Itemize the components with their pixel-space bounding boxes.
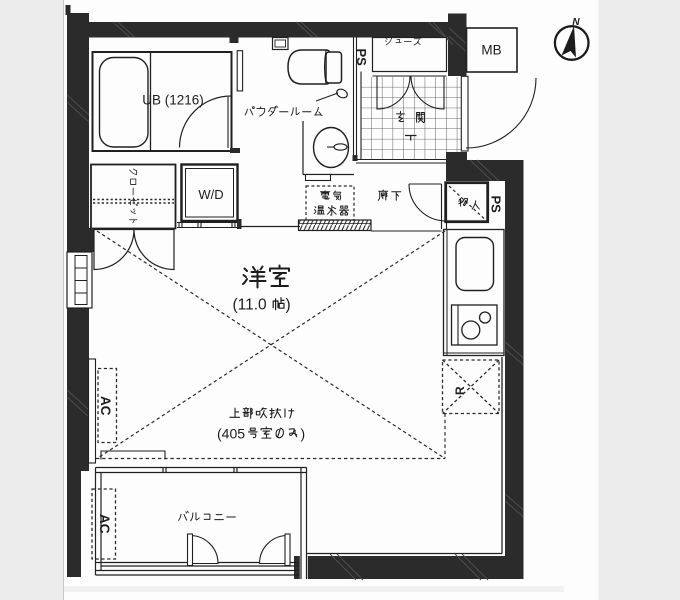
svg-text:AC: AC: [98, 396, 113, 416]
svg-text:MB: MB: [481, 43, 501, 58]
svg-text:UB (1216): UB (1216): [142, 93, 204, 108]
svg-text:(11.0: (11.0: [233, 297, 268, 314]
svg-text:W/D: W/D: [198, 187, 223, 202]
svg-text:): ): [301, 426, 306, 442]
svg-text:PS: PS: [354, 49, 369, 67]
svg-text:): ): [286, 297, 291, 314]
svg-text:PS: PS: [489, 196, 504, 214]
svg-text:(405: (405: [217, 426, 245, 442]
svg-text:N: N: [572, 17, 580, 28]
svg-text:AC: AC: [97, 514, 112, 534]
svg-text:R: R: [453, 386, 467, 395]
